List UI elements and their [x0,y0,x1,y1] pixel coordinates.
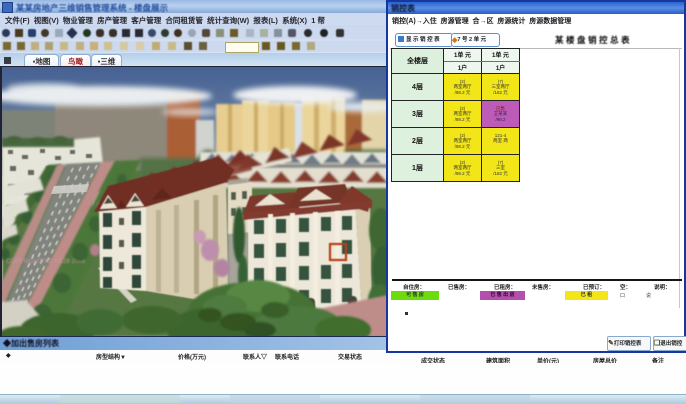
svg-text:COPYRIGHT RZ.KC28 2006: COPYRIGHT RZ.KC28 2006 [6,258,86,265]
